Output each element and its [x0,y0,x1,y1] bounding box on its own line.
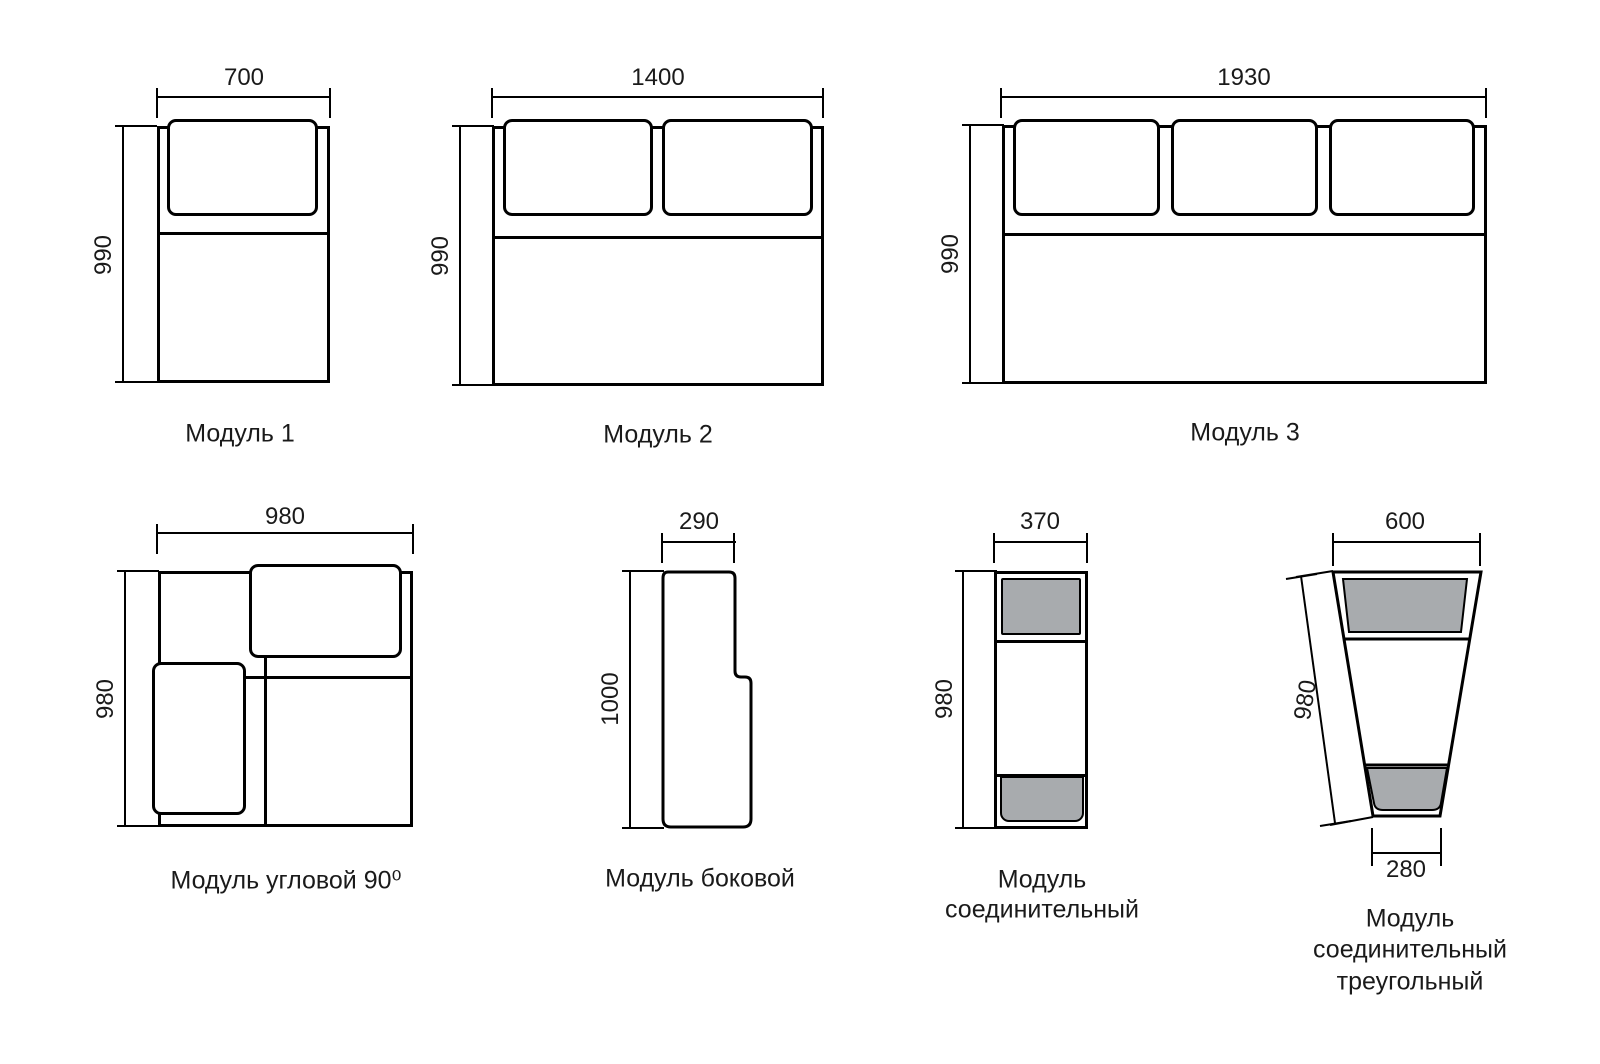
module-connector-tri-bottom-width-dim-line [1372,852,1442,854]
dim-tick [1479,533,1481,566]
module-connector-tri-top-pad [1343,579,1467,632]
dim-extension-line [1296,571,1333,577]
module-connector-tri-bottom-width-value: 280 [1386,858,1426,882]
dim-tick [1440,828,1442,866]
module-connector-tri-svg [0,0,1600,1064]
module-connector-tri-label-line3: треугольный [1337,966,1484,997]
module-connector-tri-top-width-dim-line [1333,541,1481,543]
module-connector-tri-height-value: 980 [1291,678,1321,721]
module-connector-tri-label-line1: Модуль [1366,903,1455,934]
module-connector-tri-top-width-value: 600 [1385,510,1425,534]
furniture-modules-diagram: 700 990 Модуль 1 1400 990 Модуль 2 1930 [0,0,1600,1064]
dim-extension-line [1330,817,1373,825]
dim-tick [1332,533,1334,566]
dim-tick [1371,828,1373,866]
module-connector-tri-bottom-pad [1367,768,1447,810]
module-connector-tri-label-line2: соединительный [1313,934,1507,965]
